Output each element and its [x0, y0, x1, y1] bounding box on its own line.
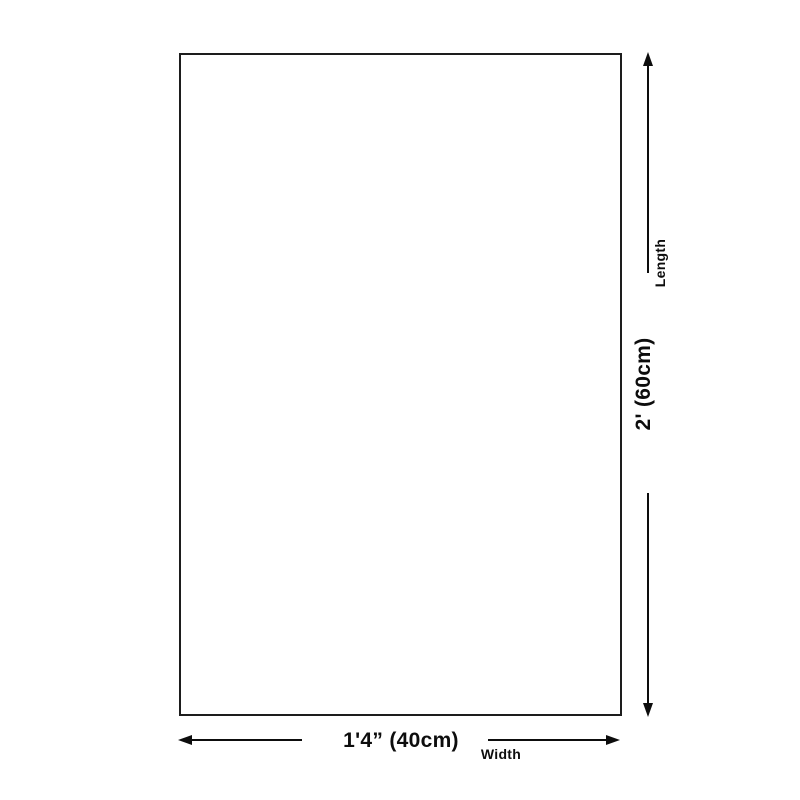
width-dimension-line-right [488, 739, 606, 742]
product-outline [179, 53, 622, 716]
arrow-left-icon [178, 735, 192, 745]
length-dimension-line-bottom [647, 493, 650, 703]
arrow-down-icon [643, 703, 653, 717]
dimension-diagram: Length 2' (60cm) 1'4” (40cm) Width [0, 0, 800, 800]
width-dimension-line-left [192, 739, 302, 742]
width-value: 1'4” (40cm) [343, 729, 459, 753]
length-dimension-line-top [647, 63, 650, 273]
arrow-right-icon [606, 735, 620, 745]
length-label: Length [652, 239, 668, 287]
length-value: 2' (60cm) [632, 338, 656, 431]
width-label: Width [481, 746, 521, 762]
